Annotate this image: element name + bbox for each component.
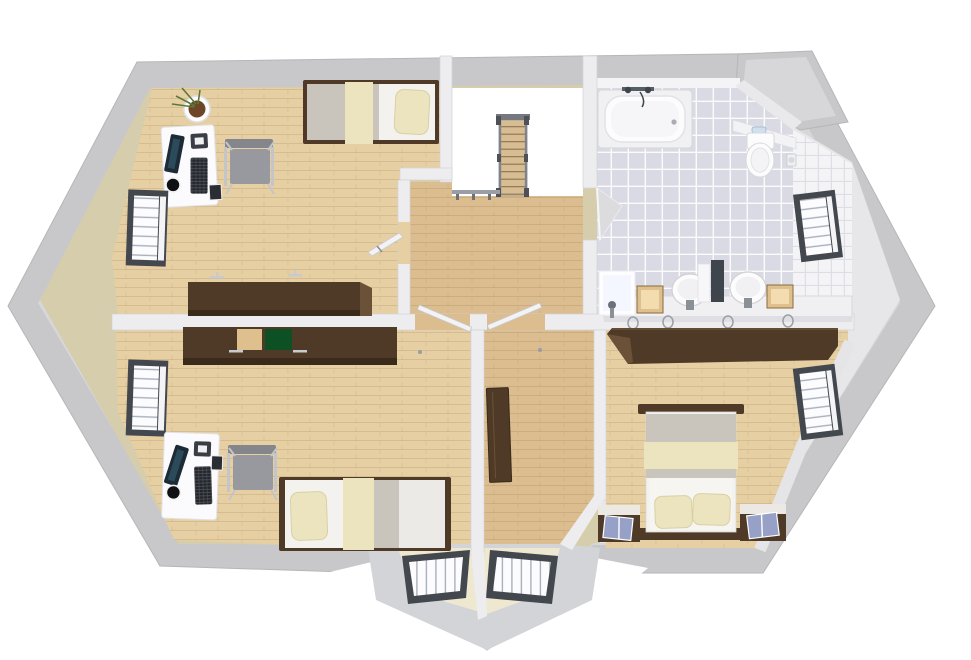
chair-arm-left [227,453,230,492]
bed-throw-cream [644,442,738,469]
tub-handle-right [645,87,651,93]
wall-lamp-3 [229,350,243,353]
desk-tablet [209,184,222,200]
bed-pillow [290,491,328,540]
keyboard [194,466,212,505]
sideboard-row[interactable] [183,327,397,365]
mirror-panel-white [698,264,710,302]
vanity-front-lip [604,316,852,322]
tan-cabinet-left-glow [641,290,659,309]
wall-lamp-2 [288,274,302,277]
bay-window-left[interactable] [402,550,470,604]
dark-open-door[interactable] [486,388,511,483]
chair-arm-right [271,147,274,186]
railing-post-1 [456,194,459,200]
mirror-panel-dark [711,260,724,302]
bed-pillow-left [654,495,692,528]
wall-lamp-4 [293,350,307,353]
keyboard [191,158,208,194]
window-left-upper[interactable] [126,189,169,266]
railing-post-3 [488,194,491,200]
bay-window-right-glass [493,557,551,596]
floor-stair-landing-planks [410,182,583,316]
sink-left-faucet [686,300,694,310]
single-bed-bottom[interactable] [279,477,451,551]
window-left-lower-glass [132,366,159,431]
chair-arm-right [274,453,277,492]
tp-roll [789,157,795,163]
window-left-upper-glass [132,196,159,261]
nightstand-left-top [598,505,640,515]
bed-throw-cream [345,82,373,144]
desk-tablet [211,456,222,470]
chair-back [225,139,273,148]
wall-bath-west-lower [583,240,597,316]
wall-hallway-west [471,330,484,556]
door-handle-left [418,350,422,354]
bed-blanket-gray [374,480,399,548]
sink-right-basin [736,277,761,298]
window-right-master[interactable] [793,364,843,441]
chair-arm-left [224,147,227,186]
bed-throw-cream [343,478,374,550]
window-left-lower[interactable] [126,359,169,436]
desk-pad-inner [198,445,207,452]
stair-post-6 [524,188,529,197]
toilet-paper-holder[interactable] [787,154,796,166]
single-bed-top[interactable] [303,80,439,144]
bathtub[interactable] [598,87,692,148]
bed-pillow [394,89,430,135]
door-gap-topleft [398,222,410,264]
double-bed[interactable] [638,404,744,540]
tan-cabinet-right-glow [771,289,789,304]
desk-top-left[interactable] [161,124,222,207]
wall-topleft-east-upper [440,56,452,182]
bed-pillow-right [692,493,730,525]
mug [166,485,180,499]
sideboard-door-green [265,329,292,350]
toilet-seat [751,148,769,172]
wall-jog [400,168,452,180]
bay-window-left-glass [409,557,463,596]
book-left[interactable] [603,516,633,541]
roof-notch-right [590,558,648,616]
toilet-flush-button [752,127,766,133]
dresser-front-strip [188,310,360,316]
mug [166,178,181,193]
desk-bottom-left[interactable] [162,432,224,520]
wall-lamp-1 [210,276,224,279]
nightstand-right[interactable] [740,504,786,541]
stair-flight[interactable] [499,120,527,196]
bay-window-right[interactable] [486,550,558,604]
landing-railing[interactable] [452,190,500,194]
vanity-lamp [608,301,616,309]
wall-lamp-2b [294,270,297,274]
vanity-lamp-stem [610,308,614,318]
nightstand-right-top [740,504,786,514]
lit-panel-glow [603,275,631,311]
chair-seat [230,149,270,184]
wall-master-west [594,330,606,500]
window-right-bath[interactable] [793,190,843,263]
railing-post-2 [472,194,475,200]
wardrobe-body [607,328,838,364]
tub-handle-left [625,87,631,93]
tub-drain [671,119,676,124]
sink-right-faucet [744,298,752,308]
wardrobe-long[interactable] [607,328,838,364]
bed-foot-area [399,480,445,548]
bathroom-wall-tiles-top [595,78,740,88]
sideboard-door-tan [237,329,262,350]
desk-pad-inner [195,137,204,144]
chair-seat [233,455,273,490]
dresser-end-face [360,282,372,316]
wall-bath-west-upper [583,56,597,188]
stair-post-4 [524,154,528,162]
door-handle-right [538,348,542,352]
stair-post-3 [497,154,501,162]
bathtub-basin [611,101,679,137]
floor-plan-canvas [0,0,971,660]
chair-back [228,445,276,454]
stair-post-1 [496,116,501,125]
nightstand-left[interactable] [598,505,640,542]
sideboard-front-strip [183,358,397,365]
stair-post-2 [524,116,529,125]
wall-lamp-1b [216,272,219,276]
